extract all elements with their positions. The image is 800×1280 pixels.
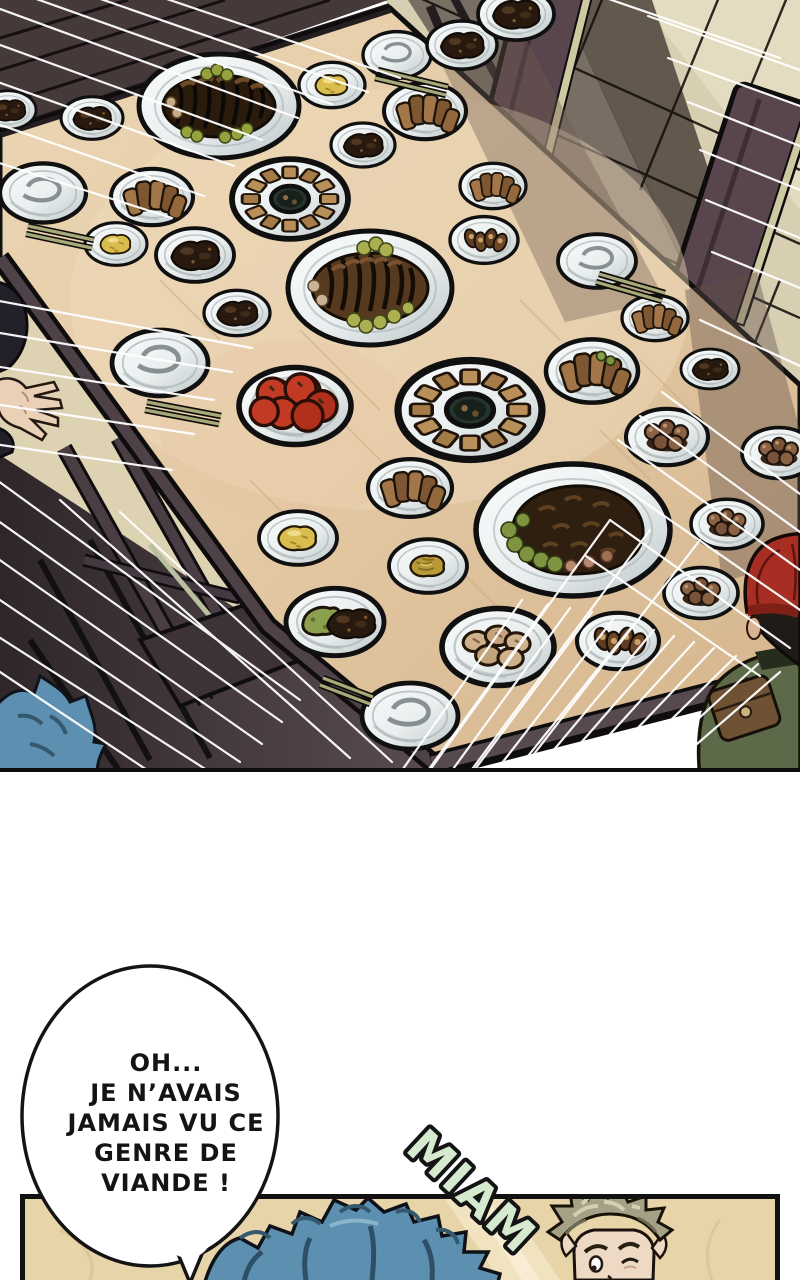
platter-roast <box>288 231 452 345</box>
plate <box>478 0 554 40</box>
plate <box>299 62 365 107</box>
plate <box>664 568 738 619</box>
plate <box>450 217 518 264</box>
plate <box>368 459 452 517</box>
plate <box>460 163 526 208</box>
plate <box>61 97 123 140</box>
platter-ring <box>398 361 542 460</box>
webtoon-page: MIAM OH... JE N’AVAIS JAMAIS VU CE GENRE… <box>0 0 800 1280</box>
plate <box>259 511 337 565</box>
plate <box>85 223 147 266</box>
ear <box>747 617 761 639</box>
plate <box>681 349 739 389</box>
bubble-line: JAMAIS VU CE <box>28 1108 304 1138</box>
plate <box>331 123 395 167</box>
plate <box>0 163 86 222</box>
speech-bubble-text: OH... JE N’AVAIS JAMAIS VU CE GENRE DE V… <box>28 1048 304 1198</box>
panel-border-bottom <box>0 768 800 777</box>
plate-tomatoes <box>239 368 351 445</box>
plate <box>362 683 458 749</box>
bubble-line: OH... <box>28 1048 304 1078</box>
bubble-line: VIANDE ! <box>28 1168 304 1198</box>
plate <box>204 290 270 335</box>
plate <box>389 539 467 593</box>
bubble-line: GENRE DE <box>28 1138 304 1168</box>
plate <box>156 228 234 282</box>
plate <box>742 428 800 479</box>
feast-panel <box>0 0 800 778</box>
platter-meat-pile <box>476 464 670 596</box>
bubble-line: JE N’AVAIS <box>28 1078 304 1108</box>
plate <box>546 339 638 402</box>
face <box>574 1230 654 1280</box>
plate <box>286 588 384 655</box>
platter-ring <box>232 159 348 239</box>
plate <box>577 613 659 669</box>
